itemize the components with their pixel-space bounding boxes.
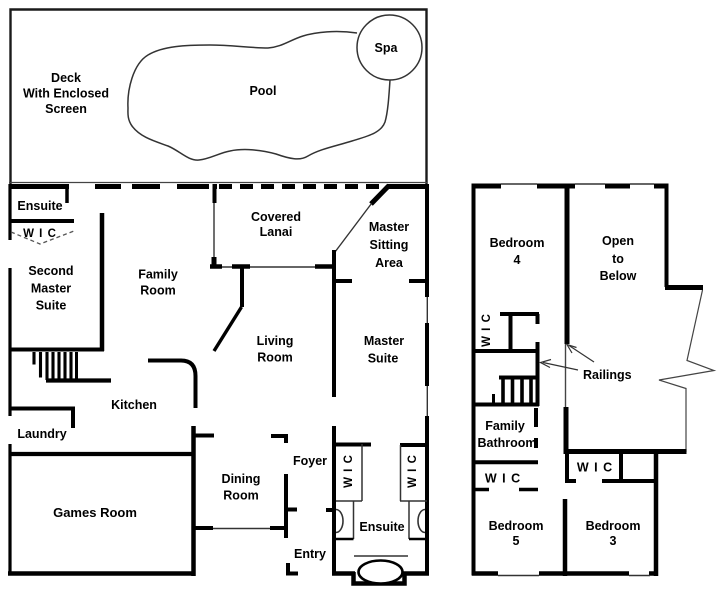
svg-text:Covered: Covered	[251, 210, 301, 224]
svg-text:Suite: Suite	[36, 299, 67, 313]
svg-text:Ensuite: Ensuite	[17, 199, 62, 213]
svg-text:Room: Room	[257, 351, 292, 365]
svg-text:Sitting: Sitting	[370, 238, 409, 252]
svg-text:Foyer: Foyer	[293, 454, 327, 468]
svg-text:W I C: W I C	[481, 313, 493, 347]
svg-text:5: 5	[513, 534, 520, 548]
svg-text:Ensuite: Ensuite	[359, 520, 404, 534]
svg-text:Room: Room	[140, 284, 175, 298]
svg-text:W I C: W I C	[23, 228, 57, 240]
svg-text:Family: Family	[138, 268, 178, 282]
svg-text:Master: Master	[364, 334, 404, 348]
svg-text:Bedroom: Bedroom	[490, 236, 545, 250]
svg-text:Games Room: Games Room	[53, 505, 137, 520]
svg-text:Screen: Screen	[45, 102, 87, 116]
svg-text:W I C: W I C	[485, 472, 521, 486]
svg-text:to: to	[612, 252, 624, 266]
svg-text:Open: Open	[602, 234, 634, 248]
svg-text:Master: Master	[369, 220, 409, 234]
svg-text:Railings: Railings	[583, 368, 632, 382]
svg-text:Below: Below	[600, 269, 637, 283]
svg-text:3: 3	[610, 534, 617, 548]
svg-text:Bedroom: Bedroom	[586, 519, 641, 533]
svg-text:Bathroom: Bathroom	[477, 436, 536, 450]
svg-text:Laundry: Laundry	[17, 427, 66, 441]
svg-text:Second: Second	[28, 264, 73, 278]
svg-text:Living: Living	[257, 334, 294, 348]
svg-text:Pool: Pool	[249, 84, 276, 98]
svg-text:Kitchen: Kitchen	[111, 398, 157, 412]
svg-text:4: 4	[514, 253, 521, 267]
svg-text:Room: Room	[223, 489, 258, 503]
svg-text:W I C: W I C	[407, 454, 419, 488]
svg-text:W I C: W I C	[577, 461, 613, 475]
svg-text:Bedroom: Bedroom	[489, 519, 544, 533]
svg-text:Deck: Deck	[51, 71, 81, 85]
svg-text:Spa: Spa	[375, 41, 399, 55]
svg-text:Dining: Dining	[222, 472, 261, 486]
svg-text:Entry: Entry	[294, 547, 326, 561]
svg-text:Master: Master	[31, 282, 71, 296]
svg-text:With Enclosed: With Enclosed	[23, 87, 109, 101]
svg-text:Lanai: Lanai	[260, 225, 293, 239]
svg-text:Area: Area	[375, 256, 404, 270]
svg-text:Suite: Suite	[368, 352, 399, 366]
svg-text:W I C: W I C	[343, 454, 355, 488]
svg-text:Family: Family	[485, 419, 525, 433]
